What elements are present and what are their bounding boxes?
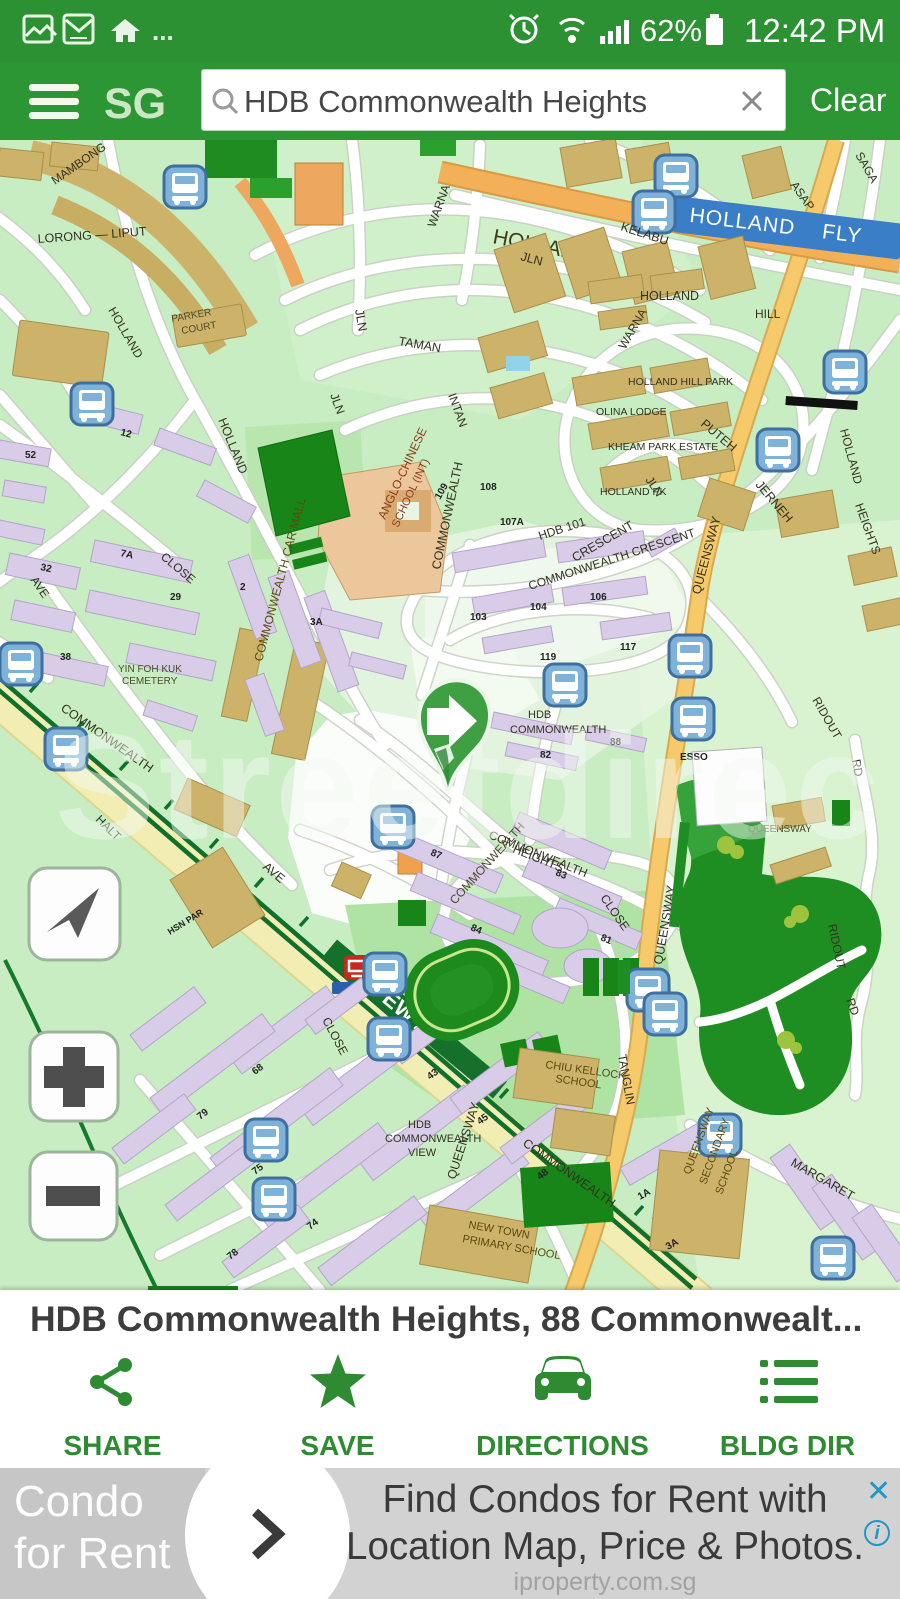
svg-text:119: 119 — [540, 652, 557, 663]
svg-text:COMMONWEALTH: COMMONWEALTH — [385, 1133, 481, 1145]
svg-text:HOLLAND: HOLLAND — [640, 289, 699, 303]
svg-text:HOLLAND HILL PARK: HOLLAND HILL PARK — [628, 376, 733, 388]
svg-text:52: 52 — [25, 450, 37, 461]
svg-text:YIN FOH KUK: YIN FOH KUK — [118, 664, 182, 675]
svg-text:62%: 62% — [640, 13, 702, 48]
svg-text:29: 29 — [170, 592, 182, 603]
svg-text:117: 117 — [620, 642, 637, 653]
svg-text:104: 104 — [530, 602, 547, 613]
svg-text:103: 103 — [470, 612, 487, 623]
svg-text:HOLLAND PK: HOLLAND PK — [600, 486, 667, 498]
svg-text:VIEW: VIEW — [408, 1147, 437, 1159]
svg-text:...: ... — [152, 16, 174, 46]
svg-text:OLINA LODGE: OLINA LODGE — [596, 406, 667, 418]
svg-text:3A: 3A — [310, 617, 323, 628]
svg-text:HILL: HILL — [755, 307, 781, 321]
svg-text:HDB: HDB — [408, 1119, 431, 1131]
svg-text:106: 106 — [590, 592, 607, 603]
svg-text:CEMETERY: CEMETERY — [122, 676, 178, 687]
svg-text:2: 2 — [240, 582, 246, 593]
svg-text:12:42 PM: 12:42 PM — [744, 12, 885, 49]
svg-text:38: 38 — [60, 652, 72, 663]
svg-text:108: 108 — [480, 482, 497, 493]
svg-text:107A: 107A — [500, 517, 524, 528]
svg-text:KHEAM PARK ESTATE: KHEAM PARK ESTATE — [608, 441, 718, 453]
